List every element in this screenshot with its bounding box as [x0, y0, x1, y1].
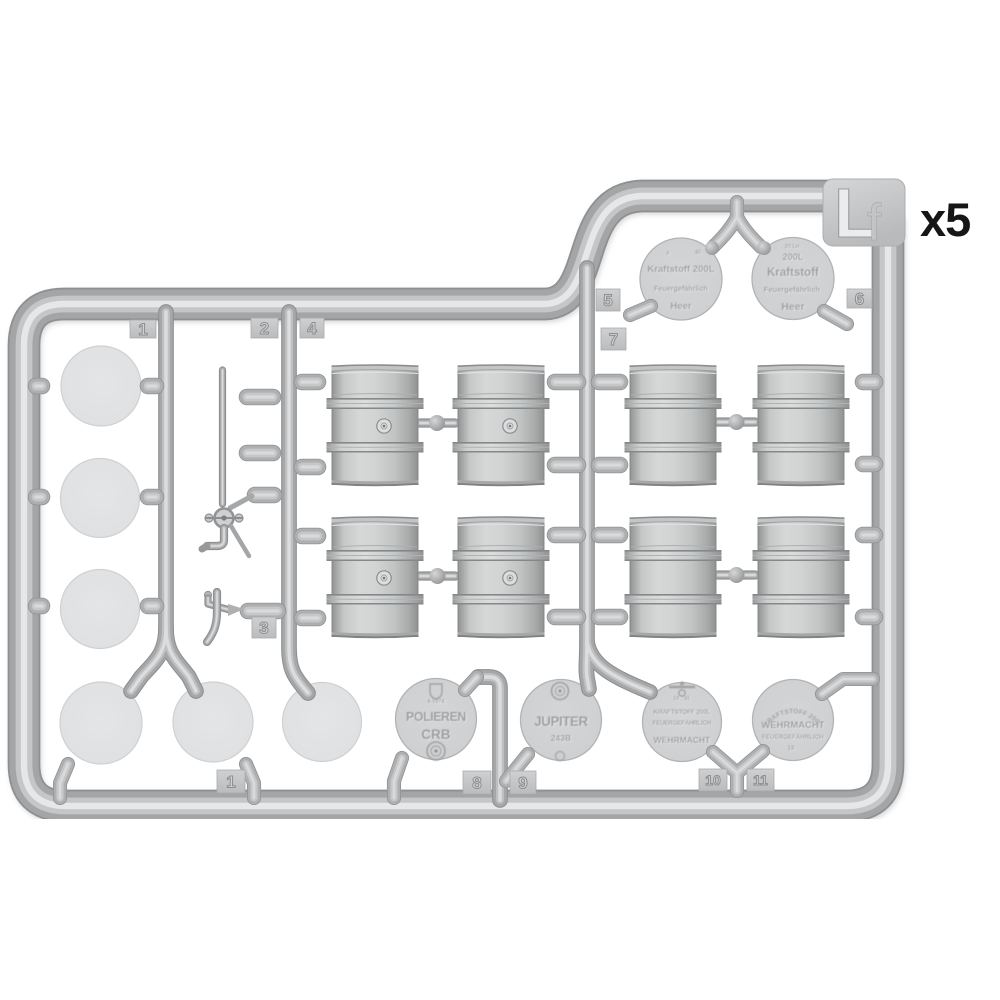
svg-text:f: f [867, 194, 882, 252]
svg-text:4: 4 [307, 319, 317, 338]
svg-text:40: 40 [695, 250, 701, 256]
svg-text:1: 1 [226, 773, 235, 792]
svg-text:5: 5 [603, 291, 612, 310]
svg-text:Kraftstoff 200L: Kraftstoff 200L [647, 264, 714, 275]
svg-text:WEHRMACHT: WEHRMACHT [761, 720, 825, 731]
svg-text:3: 3 [259, 619, 268, 638]
svg-text:2: 2 [260, 319, 269, 338]
svg-text:19: 19 [788, 746, 795, 752]
svg-text:7: 7 [609, 330, 618, 349]
svg-text:243B: 243B [551, 733, 571, 743]
svg-text:CRB: CRB [421, 727, 450, 742]
svg-text:FEUERGEFÄHRLICH: FEUERGEFÄHRLICH [762, 734, 824, 741]
svg-text:Kraftstoff: Kraftstoff [767, 267, 819, 279]
svg-text:6: 6 [855, 290, 864, 309]
svg-text:Feuergefährlich: Feuergefährlich [654, 284, 708, 293]
svg-text:200L: 200L [783, 252, 804, 262]
svg-text:POLIEREN: POLIEREN [406, 710, 466, 724]
svg-text:WEHRMACHT: WEHRMACHT [654, 735, 711, 745]
svg-text:20 Ltr.: 20 Ltr. [785, 244, 802, 250]
svg-text:11: 11 [753, 772, 768, 788]
svg-text:Heer: Heer [670, 301, 691, 312]
svg-text:19__41: 19__41 [674, 696, 691, 702]
svg-text:FEUERGEFÄHRLICH: FEUERGEFÄHRLICH [653, 720, 712, 727]
svg-text:Heer: Heer [781, 301, 804, 313]
svg-text:8: 8 [472, 774, 481, 793]
svg-text:1: 1 [138, 320, 147, 339]
svg-text:x5: x5 [920, 193, 970, 246]
svg-text:JUPITER: JUPITER [534, 714, 588, 729]
svg-text:4-1974: 4-1974 [427, 699, 445, 705]
svg-text:9: 9 [518, 774, 527, 793]
svg-text:#: # [666, 251, 669, 257]
svg-text:Feuergefährlich: Feuergefährlich [764, 285, 821, 294]
svg-text:10: 10 [705, 772, 721, 788]
svg-text:KRAFTSTOFF 200L: KRAFTSTOFF 200L [654, 709, 711, 716]
